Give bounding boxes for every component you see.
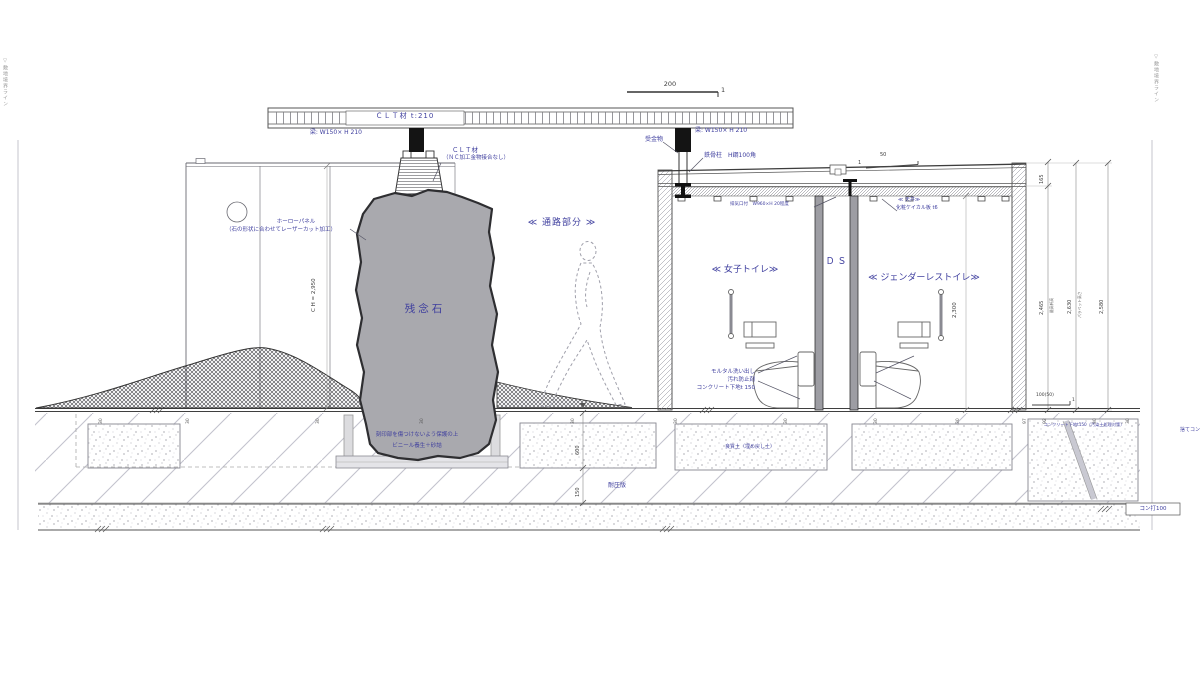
stone-name-label: 残念石 — [380, 303, 470, 316]
ground-tick: 30 — [421, 412, 426, 424]
floor-note-3: コンクリート下地t 150 — [668, 385, 755, 392]
ground-tick: 30 — [675, 412, 680, 424]
scale-top-rise: 1 — [721, 87, 725, 94]
room-height-dim: 2,300 — [953, 278, 959, 318]
hanger-label: 受金物 — [645, 136, 663, 144]
beam-left-label: 梁: W150× H 210 — [292, 129, 362, 137]
ground-line — [35, 409, 1140, 412]
gravel-wedge — [497, 382, 632, 408]
scale-top-run: 200 — [650, 81, 690, 88]
toilet-tank-left — [798, 352, 814, 386]
clt-block — [395, 151, 443, 195]
roof-slope-run: 50 — [880, 153, 886, 158]
ground-tick: 30 — [317, 412, 322, 424]
ground-tick: 30 — [572, 412, 577, 424]
backfill-label: 良質土（埋め戻し土） — [700, 444, 800, 450]
wall-unit-left — [744, 322, 776, 337]
dim-600: 600 — [576, 425, 581, 455]
beam-right-label: 梁: W150× H 210 — [695, 127, 747, 135]
ground-tick: 30 — [187, 412, 192, 424]
wall-unit-right — [898, 322, 930, 337]
toilet-tank-right — [860, 352, 876, 386]
room-left-label: ≪ 女子トイレ≫ — [700, 265, 790, 276]
ground-tick: 30 — [785, 412, 790, 424]
clt-note-2: （ＮＣ加工金物接合なし） — [443, 155, 509, 162]
panel-note-1: ホーローパネル — [240, 219, 352, 226]
boundary-label-left: ▽敷地境界ライン — [2, 58, 7, 107]
steel-column-label: 鉄骨柱 H鋼100角 — [704, 152, 756, 160]
ceiling-height-label: C H = 2,950 — [312, 250, 318, 312]
ceiling-note-2: 化粧ケイカル板 t6 — [896, 205, 938, 211]
clt-slab-label: ＣＬＴ材 t:210 — [348, 112, 462, 121]
ground-tick: 92 — [1044, 412, 1049, 424]
dim-2630-label: パラペット高さ — [1078, 274, 1082, 318]
dim-2465: 2,465 — [1040, 275, 1045, 315]
ground-tick: 30 — [1094, 412, 1099, 424]
bottom-slab — [38, 503, 1140, 530]
floor-note-2: 汚れ防止剤 — [680, 377, 755, 384]
ground-tick: 30 — [957, 412, 962, 424]
room-right-label: ≪ ジェンダーレストイレ≫ — [860, 273, 988, 284]
scale-marker-top — [627, 92, 718, 97]
ds-label: Ｄ Ｓ — [824, 257, 848, 268]
ground-tick: 30 — [1127, 412, 1132, 424]
dim-150: 150 — [576, 473, 581, 497]
passage-label: ≪ 通路部分 ≫ — [512, 218, 612, 229]
toilet-fixtures — [729, 290, 944, 409]
dim-2580: 2,580 — [1100, 274, 1105, 314]
dim-2465-label: 最高軒高 — [1050, 279, 1054, 313]
floor-note-1: モルタル洗い出し — [680, 369, 755, 376]
clt-note-1: ＣＬＴ材 — [452, 146, 478, 154]
dim-165: 165 — [1040, 158, 1045, 184]
louver-label: 排気口付 W960×H 20程度 — [730, 202, 789, 208]
lean-concrete-label: 捨てコン — [1180, 427, 1200, 433]
conc100-label: コン打100 — [1128, 506, 1178, 513]
person-silhouette — [541, 242, 625, 408]
ground-tick: 30 — [875, 412, 880, 424]
gravel-mound — [36, 348, 366, 408]
dim-2630: 2,630 — [1068, 274, 1073, 314]
ground-tick: 30 — [100, 412, 105, 424]
panel-note-2: （石の形状に合わせてレーザーカット加工） — [200, 227, 362, 234]
stone-protection-1: 刻印部を傷つけないよう保護の上 — [352, 432, 482, 439]
boundary-label-right: ▽敷地境界ライン — [1153, 54, 1158, 103]
stone-protection-2: ビニール養生＋砂詰 — [352, 443, 482, 450]
ground-tick: 97 — [1024, 412, 1029, 424]
ceiling-note-1: ≪ 天井≫ — [898, 197, 920, 203]
ds-wall-right — [850, 196, 858, 410]
floor-slope-run: 100(50) — [1036, 394, 1054, 399]
roof-slope-rise: 1 — [858, 161, 861, 166]
section-linework — [0, 0, 1200, 675]
floor-slope-rise: 1 — [1072, 399, 1075, 404]
section-drawing: ▽敷地境界ライン ▽敷地境界ライン 200 1 ＣＬＴ材 t:210 梁: W1… — [0, 0, 1200, 675]
pressure-slab-label: 耐圧版 — [608, 482, 626, 490]
ds-wall-left — [815, 196, 823, 410]
stone-shape — [356, 190, 498, 460]
